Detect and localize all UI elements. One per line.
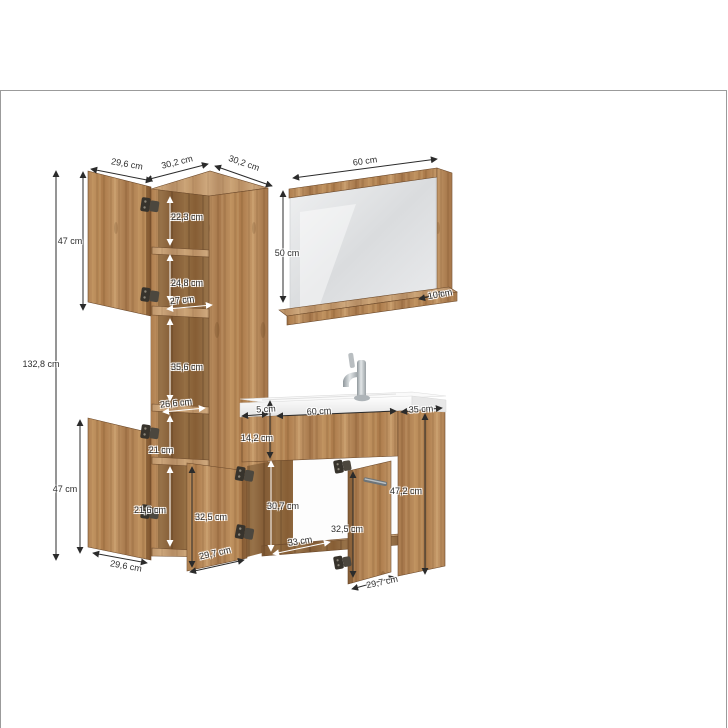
- vanity-right-panel: [398, 405, 445, 576]
- faucet: [343, 353, 370, 402]
- lower-door: [88, 418, 151, 560]
- faucet-spout: [343, 372, 358, 387]
- cabinet-left-edge: [151, 189, 158, 556]
- vanity-left-door-edge: [242, 470, 247, 559]
- faucet-pipe: [357, 360, 366, 398]
- vanity-right-door-edge: [348, 470, 353, 584]
- faucet-base: [354, 395, 370, 401]
- vanity-apron: [242, 411, 398, 462]
- faucet-lever: [348, 353, 355, 369]
- product-dimension-diagram: 29,6 cm30,2 cm30,2 cm47 cm22,3 cm24,8 cm…: [0, 0, 728, 728]
- mirror-right-bar: [437, 168, 452, 302]
- furniture-illustration: [0, 0, 728, 728]
- lower-door-edge: [146, 432, 151, 560]
- mirror: [279, 168, 457, 325]
